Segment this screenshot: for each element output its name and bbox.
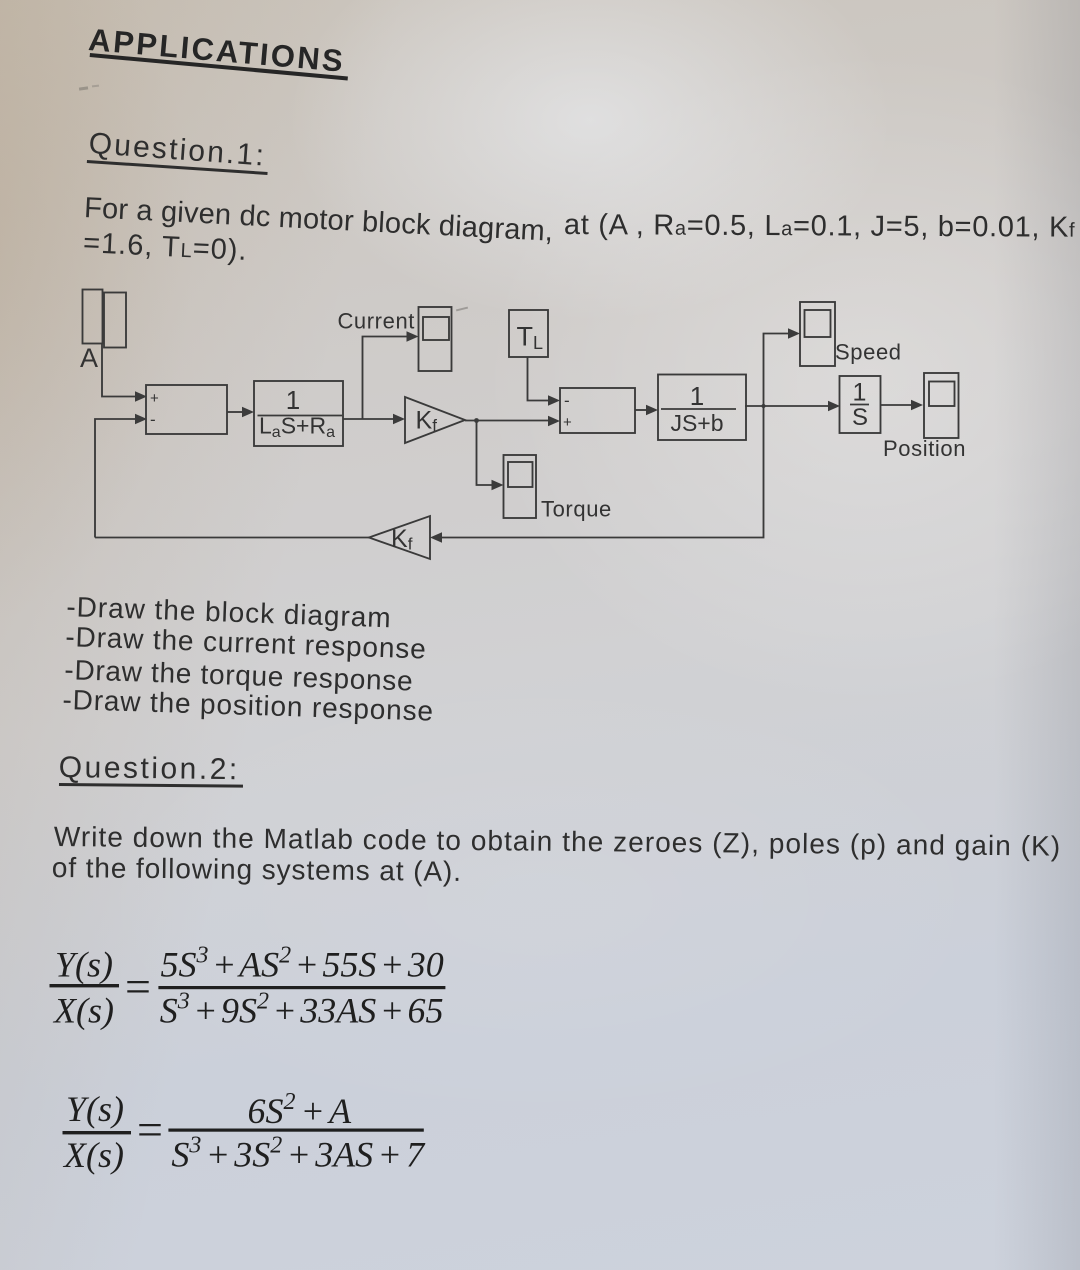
svg-text:Y(s): Y(s)	[66, 1089, 124, 1129]
svg-text:5S3 + AS2 + 55S + 30: 5S3 + AS2 + 55S + 30	[161, 943, 444, 985]
svg-text:1: 1	[286, 385, 300, 415]
svg-text:Current: Current	[337, 309, 415, 334]
svg-text:S3 + 3S2 + 3AS + 7: S3 + 3S2 + 3AS + 7	[171, 1133, 426, 1175]
svg-text:Torque: Torque	[541, 497, 612, 522]
svg-text:Kf: Kf	[416, 407, 438, 436]
svg-text:+: +	[150, 390, 159, 407]
svg-text:X(s): X(s)	[62, 1135, 124, 1175]
svg-text:X(s): X(s)	[52, 991, 114, 1031]
svg-text:6S2 + A: 6S2 + A	[248, 1089, 353, 1131]
svg-text:=: =	[137, 1104, 163, 1155]
svg-text:+: +	[563, 414, 572, 431]
svg-text:TL: TL	[517, 322, 544, 354]
svg-text:=: =	[125, 961, 151, 1012]
svg-text:S3 + 9S2 + 33AS + 65: S3 + 9S2 + 33AS + 65	[160, 988, 444, 1030]
svg-text:JS+b: JS+b	[670, 410, 723, 436]
svg-text:Position: Position	[883, 436, 966, 461]
svg-text:LaS+Ra: LaS+Ra	[259, 413, 335, 442]
svg-text:A: A	[80, 343, 98, 373]
svg-text:Y(s): Y(s)	[55, 945, 113, 985]
svg-text:-: -	[150, 410, 156, 429]
svg-text:S: S	[852, 404, 868, 431]
svg-text:-: -	[564, 391, 570, 410]
svg-text:1: 1	[853, 379, 867, 407]
svg-text:Speed: Speed	[835, 340, 902, 365]
svg-text:1: 1	[690, 381, 704, 411]
svg-text:Kf: Kf	[391, 525, 413, 554]
